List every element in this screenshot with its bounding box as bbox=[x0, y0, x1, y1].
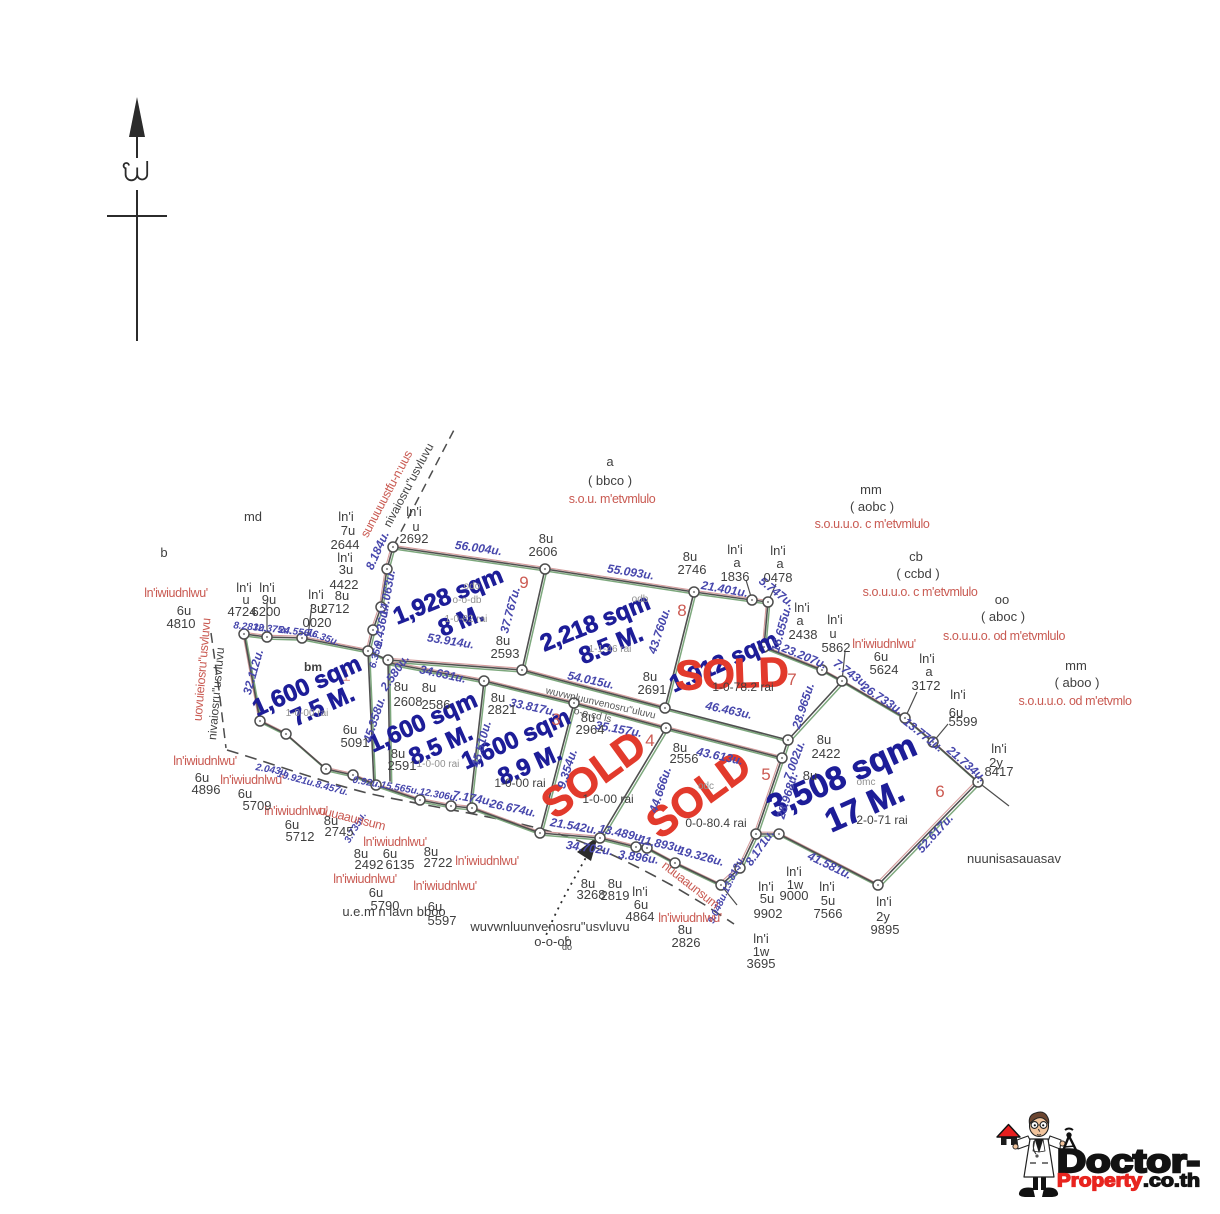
svg-text:ln'iwiudnlwu': ln'iwiudnlwu' bbox=[455, 854, 519, 868]
svg-text:( aboc ): ( aboc ) bbox=[981, 609, 1025, 624]
svg-text:( aobc ): ( aobc ) bbox=[850, 499, 894, 514]
svg-text:9902: 9902 bbox=[754, 906, 783, 921]
svg-text:6: 6 bbox=[935, 782, 944, 801]
svg-text:8u: 8u bbox=[817, 732, 831, 747]
svg-text:2586: 2586 bbox=[422, 697, 451, 712]
svg-text:2606: 2606 bbox=[529, 544, 558, 559]
svg-text:s.o.u.u.o. c m'etvmlulo: s.o.u.u.o. c m'etvmlulo bbox=[863, 585, 978, 599]
svg-text:2608: 2608 bbox=[394, 694, 423, 709]
svg-text:2591: 2591 bbox=[388, 758, 417, 773]
svg-text:2593: 2593 bbox=[491, 646, 520, 661]
svg-text:u.e.m n lavn bboo: u.e.m n lavn bboo bbox=[342, 904, 445, 919]
svg-text:1836: 1836 bbox=[721, 569, 750, 584]
svg-text:5: 5 bbox=[761, 765, 770, 784]
svg-text:( ccbd ): ( ccbd ) bbox=[896, 566, 939, 581]
svg-text:odc: odc bbox=[698, 781, 714, 792]
svg-text:ln'i: ln'i bbox=[991, 741, 1007, 756]
svg-text:8u: 8u bbox=[803, 768, 817, 783]
svg-text:7: 7 bbox=[787, 670, 796, 689]
svg-text:o-o-db: o-o-db bbox=[453, 595, 482, 606]
svg-text:b: b bbox=[160, 545, 167, 560]
svg-text:ln'iwiudnlwu': ln'iwiudnlwu' bbox=[333, 872, 397, 886]
svg-text:2-0-71 rai: 2-0-71 rai bbox=[856, 813, 907, 827]
svg-text:8u: 8u bbox=[394, 679, 408, 694]
svg-text:6200: 6200 bbox=[252, 604, 281, 619]
svg-text:ln'iwiudnlwu': ln'iwiudnlwu' bbox=[220, 773, 284, 787]
svg-text:s.o.u.u.o. c m'etvmlulo: s.o.u.u.o. c m'etvmlulo bbox=[815, 517, 930, 531]
svg-text:a: a bbox=[925, 664, 933, 679]
svg-text:ln'i: ln'i bbox=[819, 879, 835, 894]
svg-text:odb: odb bbox=[632, 594, 649, 605]
svg-text:mm: mm bbox=[860, 482, 882, 497]
svg-text:5862: 5862 bbox=[822, 640, 851, 655]
svg-text:2692: 2692 bbox=[400, 531, 429, 546]
svg-text:2492: 2492 bbox=[355, 857, 384, 872]
svg-text:bm: bm bbox=[304, 660, 322, 674]
svg-text:5599: 5599 bbox=[949, 714, 978, 729]
svg-text:1-0-78.2 rai: 1-0-78.2 rai bbox=[712, 680, 773, 694]
svg-text:Property: Property bbox=[1057, 1171, 1142, 1191]
svg-text:5712: 5712 bbox=[286, 829, 315, 844]
svg-text:5u: 5u bbox=[760, 891, 774, 906]
svg-text:9000: 9000 bbox=[780, 888, 809, 903]
svg-text:5709: 5709 bbox=[243, 798, 272, 813]
svg-text:s.o.u.u.o. od m'etvmlulo: s.o.u.u.o. od m'etvmlulo bbox=[943, 629, 1065, 643]
svg-text:8: 8 bbox=[677, 601, 686, 620]
svg-text:cb: cb bbox=[909, 549, 923, 564]
svg-text:8u: 8u bbox=[422, 680, 436, 695]
svg-text:ln'i: ln'i bbox=[308, 587, 324, 602]
svg-text:s.o.u.u.o. od m'etvmlo: s.o.u.u.o. od m'etvmlo bbox=[1018, 694, 1132, 708]
svg-text:4864: 4864 bbox=[626, 909, 655, 924]
svg-text:mm: mm bbox=[1065, 658, 1087, 673]
svg-text:3695: 3695 bbox=[747, 956, 776, 971]
svg-text:a: a bbox=[796, 613, 804, 628]
svg-text:ln'i: ln'i bbox=[950, 687, 966, 702]
svg-text:3172: 3172 bbox=[912, 678, 941, 693]
svg-text:omc: omc bbox=[857, 777, 876, 788]
svg-text:2964: 2964 bbox=[576, 722, 605, 737]
svg-text:s.o.u. m'etvmlulo: s.o.u. m'etvmlulo bbox=[569, 492, 656, 506]
svg-text:a: a bbox=[606, 454, 614, 469]
svg-text:ln'i: ln'i bbox=[827, 612, 843, 627]
svg-text:( bbco ): ( bbco ) bbox=[588, 473, 632, 488]
svg-text:0-0-80.4 rai: 0-0-80.4 rai bbox=[685, 816, 746, 830]
svg-text:odo: odo bbox=[464, 581, 481, 592]
svg-text:4896: 4896 bbox=[192, 782, 221, 797]
svg-text:nuunisasauasav: nuunisasauasav bbox=[967, 851, 1061, 866]
svg-text:1-0-82 rai: 1-0-82 rai bbox=[445, 614, 488, 625]
svg-text:4810: 4810 bbox=[167, 616, 196, 631]
svg-text:3u: 3u bbox=[339, 562, 353, 577]
svg-text:7566: 7566 bbox=[814, 906, 843, 921]
svg-text:1-0-00 rai: 1-0-00 rai bbox=[286, 708, 329, 719]
svg-text:do: do bbox=[562, 942, 572, 952]
svg-text:1-0-00 rai: 1-0-00 rai bbox=[417, 759, 460, 770]
svg-text:7u: 7u bbox=[341, 523, 355, 538]
svg-text:4: 4 bbox=[645, 731, 654, 750]
svg-text:2438: 2438 bbox=[789, 627, 818, 642]
svg-text:0478: 0478 bbox=[764, 570, 793, 585]
svg-text:2712: 2712 bbox=[321, 601, 350, 616]
svg-text:.co.th: .co.th bbox=[1143, 1171, 1200, 1191]
svg-text:oo: oo bbox=[995, 592, 1009, 607]
svg-text:2826: 2826 bbox=[672, 935, 701, 950]
svg-text:2821: 2821 bbox=[488, 702, 517, 717]
svg-text:( aboo ): ( aboo ) bbox=[1055, 675, 1100, 690]
svg-text:wuvwnluunvenosru"usvluvu: wuvwnluunvenosru"usvluvu bbox=[469, 919, 629, 934]
svg-text:2745: 2745 bbox=[325, 824, 354, 839]
svg-text:md: md bbox=[244, 509, 262, 524]
svg-text:1-1-46 rai: 1-1-46 rai bbox=[589, 644, 632, 655]
svg-text:ln'i: ln'i bbox=[338, 509, 354, 524]
svg-text:ln'iwiudnlwu': ln'iwiudnlwu' bbox=[413, 879, 477, 893]
svg-text:9895: 9895 bbox=[871, 922, 900, 937]
svg-text:2722: 2722 bbox=[424, 855, 453, 870]
svg-text:1-0-00 rai: 1-0-00 rai bbox=[582, 792, 633, 806]
svg-text:2556: 2556 bbox=[670, 751, 699, 766]
svg-text:a: a bbox=[733, 555, 741, 570]
svg-text:6135: 6135 bbox=[386, 857, 415, 872]
svg-text:5091: 5091 bbox=[341, 735, 370, 750]
svg-text:2691: 2691 bbox=[638, 682, 667, 697]
svg-text:u: u bbox=[829, 626, 836, 641]
svg-text:ln'iwiudnlwu': ln'iwiudnlwu' bbox=[264, 804, 328, 818]
svg-text:ln'i: ln'i bbox=[406, 504, 422, 519]
svg-text:ln'iwiudnlwu': ln'iwiudnlwu' bbox=[144, 586, 208, 600]
svg-text:2819: 2819 bbox=[601, 888, 630, 903]
svg-text:ln'i: ln'i bbox=[876, 894, 892, 909]
svg-text:2746: 2746 bbox=[678, 562, 707, 577]
svg-text:a: a bbox=[776, 556, 784, 571]
svg-text:5624: 5624 bbox=[870, 662, 899, 677]
svg-text:ln'iwiudnlwu': ln'iwiudnlwu' bbox=[173, 754, 237, 768]
svg-text:8417: 8417 bbox=[985, 764, 1014, 779]
svg-text:2422: 2422 bbox=[812, 746, 841, 761]
